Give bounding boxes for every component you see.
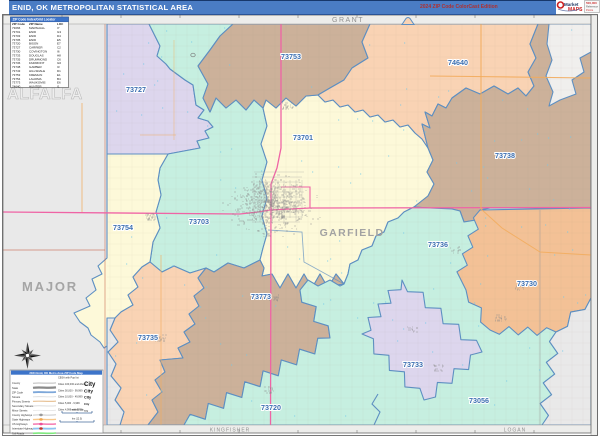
svg-text:Reference: Reference [586, 5, 599, 9]
svg-text:73733: 73733 [403, 360, 423, 369]
svg-text:Minor Streets: Minor Streets [12, 409, 28, 413]
svg-text:Points: Points [586, 8, 594, 12]
svg-text:City: City [84, 382, 96, 388]
svg-text:State Highways: State Highways [12, 418, 31, 422]
svg-text:73720: 73720 [261, 403, 281, 412]
svg-text:I1: I1 [57, 85, 60, 89]
svg-text:73773: 73773 [251, 292, 271, 301]
svg-text:State: State [12, 386, 19, 390]
svg-text:City: City [84, 388, 93, 394]
svg-text:Streets: Streets [12, 395, 21, 399]
svg-text:73703: 73703 [189, 217, 209, 226]
svg-text:GRANT: GRANT [332, 17, 364, 24]
svg-text:km (12.0): km (12.0) [72, 418, 82, 421]
svg-text:74640: 74640 [448, 58, 468, 67]
svg-text:73738: 73738 [495, 151, 515, 160]
svg-text:HUNTER: HUNTER [29, 85, 42, 89]
svg-text:County Highways: County Highways [12, 413, 33, 417]
svg-text:City: City [84, 402, 90, 406]
svg-text:City: City [84, 396, 92, 400]
svg-text:GARFIELD: GARFIELD [320, 227, 385, 239]
svg-text:County: County [12, 381, 21, 385]
svg-text:Primary Streets: Primary Streets [12, 399, 31, 403]
svg-text:ZIP Code Index/Grid Locator: ZIP Code Index/Grid Locator [13, 18, 57, 22]
svg-text:US Highways: US Highways [12, 422, 28, 426]
svg-text:73753: 73753 [281, 52, 301, 61]
svg-text:LOGAN: LOGAN [504, 428, 527, 434]
svg-text:Secondary Streets: Secondary Streets [12, 404, 34, 408]
svg-text:miles (7.5): miles (7.5) [71, 409, 82, 412]
svg-text:500,000: 500,000 [586, 1, 597, 5]
svg-text:73754: 73754 [113, 223, 133, 232]
svg-text:73056: 73056 [469, 396, 489, 405]
svg-text:Cities 10,000 - 49,999: Cities 10,000 - 49,999 [58, 396, 83, 399]
svg-text:KINGFISHER: KINGFISHER [210, 428, 251, 434]
svg-text:73727: 73727 [126, 85, 146, 94]
svg-text:CBSA with Pop list: CBSA with Pop list [58, 377, 79, 380]
svg-text:Interstate Highways: Interstate Highways [12, 427, 35, 431]
svg-text:ZIP Code: ZIP Code [12, 390, 23, 394]
svg-text:73730: 73730 [517, 279, 537, 288]
svg-text:Toll Roads: Toll Roads [12, 431, 25, 435]
svg-text:2024 Enid, OK Metro Area ZIP C: 2024 Enid, OK Metro Area ZIP Code Map [29, 371, 83, 375]
svg-text:73735: 73735 [138, 333, 158, 342]
svg-text:Cities 50,000 - 99,999: Cities 50,000 - 99,999 [58, 389, 83, 392]
svg-text:74640: 74640 [12, 85, 21, 89]
svg-text:MAJOR: MAJOR [22, 279, 78, 294]
svg-text:Cities 5,000 - 9,999: Cities 5,000 - 9,999 [58, 402, 80, 405]
svg-text:Cities 100,000 and Above: Cities 100,000 and Above [58, 383, 87, 386]
svg-text:73701: 73701 [293, 133, 313, 142]
svg-text:73736: 73736 [428, 240, 448, 249]
